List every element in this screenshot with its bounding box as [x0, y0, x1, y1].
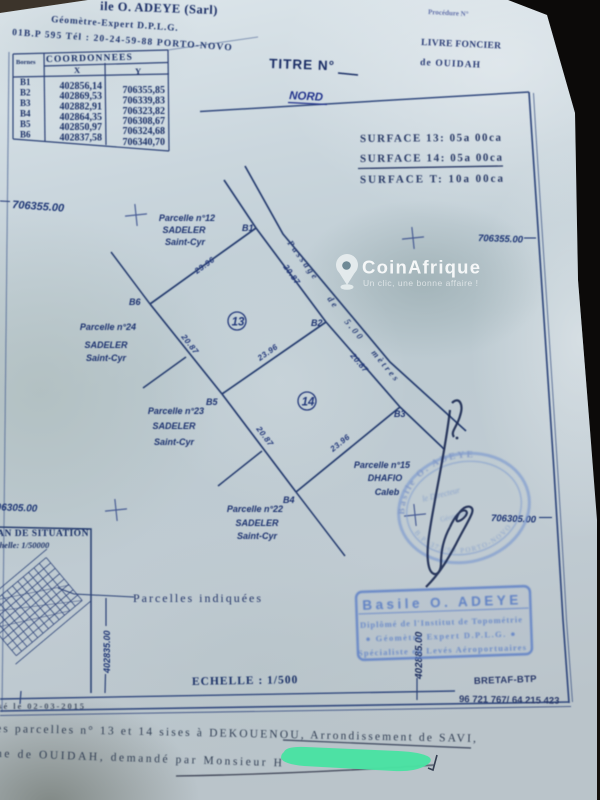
svg-text:402850,97: 402850,97 [60, 122, 103, 133]
svg-text:DHAFIO: DHAFIO [368, 473, 403, 483]
svg-text:CoinAfrique: CoinAfrique [362, 257, 480, 278]
svg-text:B5: B5 [206, 397, 218, 407]
svg-text:Saint-Cyr: Saint-Cyr [237, 531, 278, 541]
svg-text:Parcelles indiquées: Parcelles indiquées [133, 591, 261, 605]
svg-text:B6: B6 [20, 130, 31, 140]
svg-text:B3: B3 [20, 98, 31, 108]
svg-text:Saint-Cyr: Saint-Cyr [86, 353, 127, 363]
svg-text:706340,70: 706340,70 [123, 137, 166, 148]
svg-text:NORD: NORD [289, 90, 323, 104]
svg-text:402835.00: 402835.00 [102, 630, 112, 674]
svg-text:Parcelle n°15: Parcelle n°15 [354, 460, 411, 470]
svg-text:Parcelle n°24: Parcelle n°24 [80, 322, 136, 332]
svg-text:B1: B1 [20, 77, 31, 87]
svg-text:SADELER: SADELER [235, 518, 279, 528]
svg-text:SURFACE 13: 05a 00ca: SURFACE 13: 05a 00ca [360, 132, 502, 145]
svg-text:B5: B5 [20, 119, 31, 129]
svg-text:402882,91: 402882,91 [60, 102, 103, 113]
svg-text:B4: B4 [283, 495, 295, 505]
svg-text:X: X [74, 65, 81, 75]
svg-text:B1: B1 [242, 223, 254, 233]
svg-text:B3: B3 [394, 409, 406, 419]
svg-text:Y: Y [135, 66, 141, 76]
svg-text:Saint-Cyr: Saint-Cyr [154, 437, 195, 447]
svg-text:PLAN DE SITUATION: PLAN DE SITUATION [0, 529, 89, 539]
svg-text:706339,83: 706339,83 [123, 96, 166, 107]
svg-text:SURFACE 14: 05a 00ca: SURFACE 14: 05a 00ca [360, 152, 503, 165]
svg-text:706355.00: 706355.00 [478, 233, 524, 246]
svg-text:402837,58: 402837,58 [60, 133, 103, 144]
svg-text:706305.00: 706305.00 [0, 502, 38, 515]
svg-text:Echelle: 1/50000: Echelle: 1/50000 [0, 540, 50, 550]
svg-text:Un clic, une bonne affaire !: Un clic, une bonne affaire ! [363, 278, 478, 288]
svg-text:706355,85: 706355,85 [123, 85, 166, 96]
svg-text:Caleb: Caleb [375, 487, 400, 497]
svg-text:isé le 02-03-2015: isé le 02-03-2015 [0, 701, 84, 711]
svg-text:BRETAF-BTP: BRETAF-BTP [474, 674, 538, 687]
svg-text:Parcelle n°23: Parcelle n°23 [148, 406, 204, 416]
svg-text:Parcelle n°22: Parcelle n°22 [227, 504, 283, 514]
svg-text:TITRE N°: TITRE N° [269, 56, 335, 73]
svg-text:Parcelle n°12: Parcelle n°12 [159, 213, 215, 223]
svg-text:96 721 767/ 64 215 423: 96 721 767/ 64 215 423 [459, 694, 560, 707]
svg-text:SADELER: SADELER [84, 340, 128, 350]
svg-text:ECHELLE : 1/500: ECHELLE : 1/500 [192, 674, 299, 688]
svg-text:SADELER: SADELER [162, 225, 206, 235]
svg-text:SADELER: SADELER [152, 421, 196, 431]
svg-text:14: 14 [302, 397, 315, 409]
svg-text:13: 13 [232, 317, 245, 329]
svg-text:B6: B6 [129, 297, 141, 307]
svg-text:706305.00: 706305.00 [491, 513, 537, 526]
svg-text:Saint-Cyr: Saint-Cyr [165, 237, 206, 247]
svg-text:402869,53: 402869,53 [60, 91, 103, 102]
svg-text:B2: B2 [20, 88, 31, 98]
svg-text:B2: B2 [311, 318, 323, 328]
svg-text:Bornes: Bornes [16, 59, 36, 66]
svg-text:706324,68: 706324,68 [123, 126, 166, 137]
svg-text:B4: B4 [20, 109, 31, 119]
